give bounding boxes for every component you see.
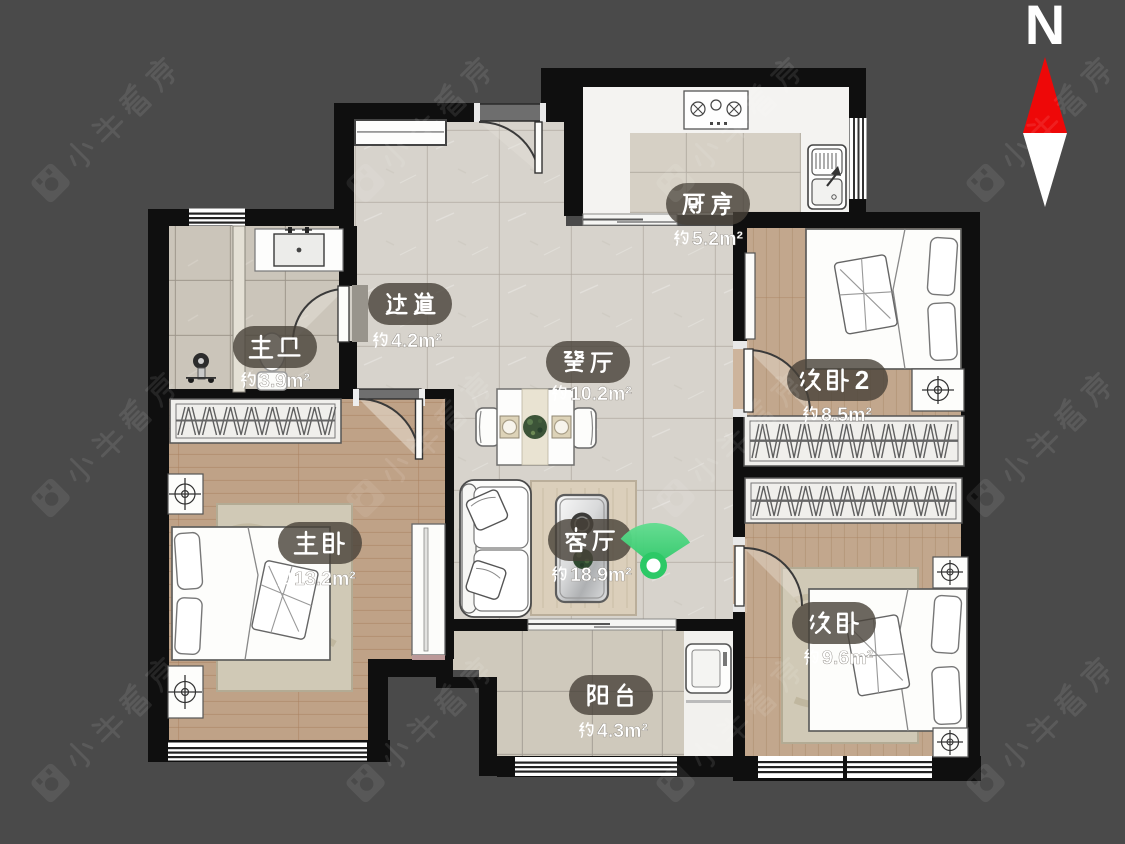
- svg-text:2: 2: [855, 365, 869, 395]
- svg-text:8.5m²: 8.5m²: [821, 404, 872, 426]
- svg-text:10.2m²: 10.2m²: [570, 383, 632, 405]
- svg-text:13.2m²: 13.2m²: [294, 568, 356, 590]
- svg-text:3.9m²: 3.9m²: [259, 370, 310, 392]
- svg-text:4.2m²: 4.2m²: [391, 330, 442, 352]
- svg-text:18.9m²: 18.9m²: [570, 564, 632, 586]
- svg-text:4.3m²: 4.3m²: [597, 720, 648, 742]
- svg-text:5.2m²: 5.2m²: [692, 228, 743, 250]
- svg-text:N: N: [1025, 0, 1065, 56]
- svg-text:9.6m²: 9.6m²: [822, 647, 873, 669]
